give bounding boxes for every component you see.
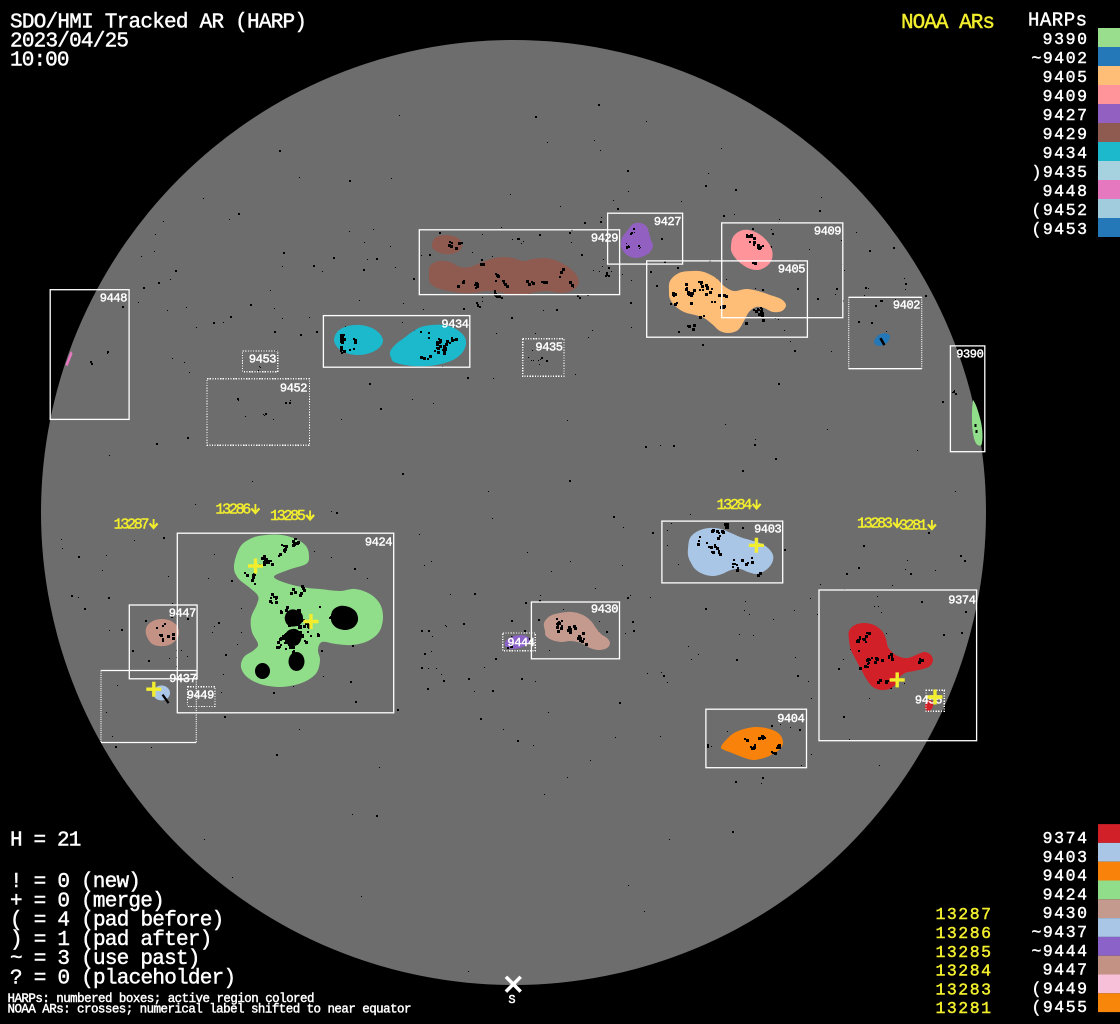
svg-text:)9435: )9435 [1032, 163, 1088, 182]
svg-text:13287: 13287 [936, 905, 992, 924]
svg-text:9427: 9427 [654, 215, 682, 229]
svg-text:13287: 13287 [114, 517, 150, 534]
svg-text:9430: 9430 [591, 603, 619, 617]
svg-text:9427: 9427 [1043, 106, 1087, 125]
svg-text:9435: 9435 [535, 341, 563, 355]
svg-text:9448: 9448 [100, 292, 128, 306]
svg-text:9403: 9403 [754, 523, 782, 537]
svg-text:13285: 13285 [936, 943, 992, 962]
svg-text:S: S [508, 993, 515, 1007]
svg-text:9409: 9409 [814, 225, 842, 239]
svg-text:NOAA ARs: NOAA ARs [901, 12, 995, 35]
svg-text:(9453: (9453 [1032, 220, 1088, 239]
svg-text:13284: 13284 [717, 497, 753, 514]
svg-text:9424: 9424 [365, 536, 393, 550]
svg-text:13286: 13286 [215, 502, 251, 519]
svg-text:? = 0 (placeholder): ? = 0 (placeholder) [10, 968, 236, 991]
svg-text:9405: 9405 [778, 263, 806, 277]
svg-text:9437: 9437 [169, 672, 197, 686]
svg-text:9409: 9409 [1043, 87, 1087, 106]
svg-text:9424: 9424 [1043, 885, 1087, 904]
svg-text:(9449: (9449 [1032, 979, 1088, 998]
svg-text:13284: 13284 [936, 962, 992, 981]
svg-text:9390: 9390 [1043, 30, 1087, 49]
svg-text:9447: 9447 [1043, 961, 1087, 980]
svg-text:9403: 9403 [1043, 848, 1087, 867]
svg-text:13283: 13283 [857, 516, 893, 533]
svg-text:9390: 9390 [956, 348, 984, 362]
svg-text:9404: 9404 [777, 712, 805, 726]
svg-text:13285: 13285 [270, 508, 306, 525]
svg-text:9429: 9429 [1043, 125, 1087, 144]
svg-text:(9455: (9455 [1032, 998, 1088, 1017]
svg-text:~9437: ~9437 [1032, 923, 1088, 942]
svg-text:~9444: ~9444 [1032, 942, 1088, 961]
svg-text:9429: 9429 [591, 232, 619, 246]
svg-text:9444: 9444 [507, 636, 535, 650]
svg-text:9449: 9449 [187, 689, 215, 703]
svg-text:(9452: (9452 [1032, 201, 1088, 220]
svg-text:3281: 3281 [899, 518, 928, 535]
svg-text:NOAA ARs: crosses; numerical l: NOAA ARs: crosses; numerical label shift… [8, 1003, 412, 1017]
svg-text:9448: 9448 [1043, 182, 1087, 201]
svg-text:9430: 9430 [1043, 904, 1087, 923]
svg-text:9405: 9405 [1043, 68, 1087, 87]
svg-text:9404: 9404 [1043, 867, 1087, 886]
svg-text:~9402: ~9402 [1032, 49, 1088, 68]
svg-text:10:00: 10:00 [10, 50, 70, 73]
svg-text:H = 21: H = 21 [10, 830, 81, 853]
svg-text:13286: 13286 [936, 924, 992, 943]
svg-text:9452: 9452 [280, 382, 308, 396]
svg-text:9447: 9447 [169, 607, 197, 621]
svg-text:9374: 9374 [948, 594, 976, 608]
svg-text:9434: 9434 [1043, 144, 1087, 163]
svg-text:9453: 9453 [249, 353, 277, 367]
svg-text:HARPs: HARPs [1028, 10, 1087, 32]
svg-text:13281: 13281 [936, 999, 992, 1018]
svg-text:13283: 13283 [936, 980, 992, 999]
svg-text:9434: 9434 [441, 318, 469, 332]
svg-text:9374: 9374 [1043, 829, 1087, 848]
svg-text:9402: 9402 [893, 299, 921, 313]
